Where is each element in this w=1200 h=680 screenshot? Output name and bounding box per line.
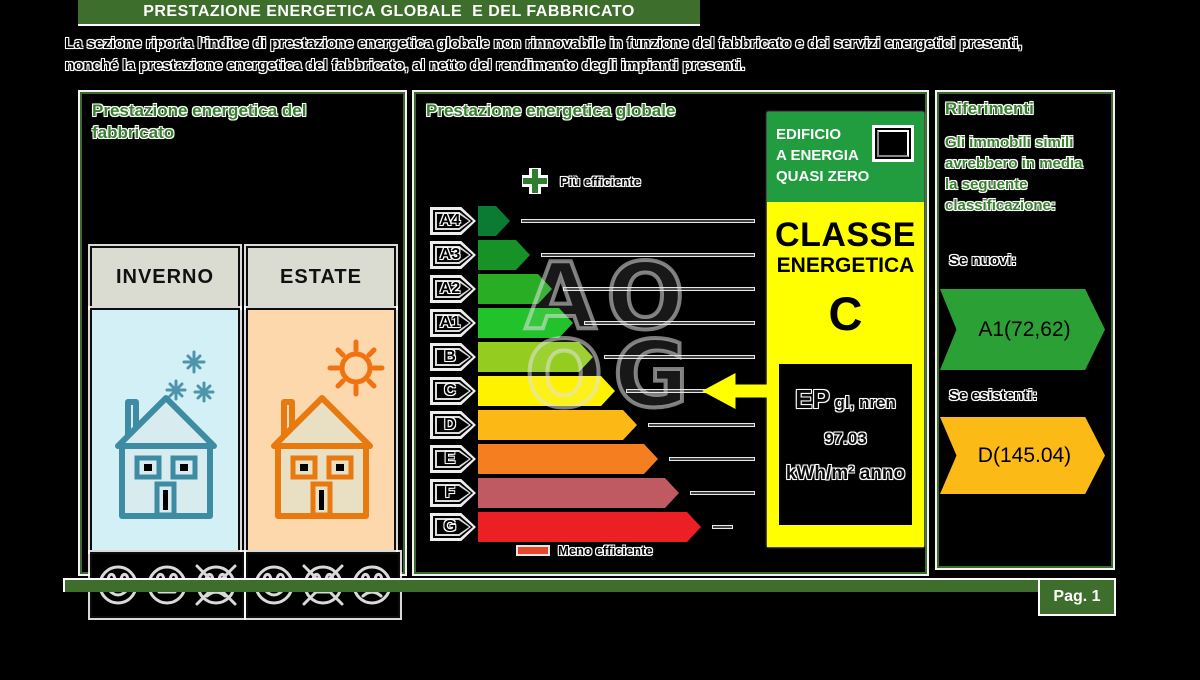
- ep-value-box: EP gl, nren 97.03 kWh/m² anno: [779, 364, 912, 525]
- class-tag: A3: [430, 241, 476, 269]
- nzeb-class-box: EDIFICIO A ENERGIA QUASI ZERO CLASSE ENE…: [767, 112, 924, 547]
- page-canvas: { "header": { "title": "PRESTAZIONE ENER…: [0, 0, 1200, 680]
- class-arrow: [478, 240, 530, 270]
- nzeb-checkbox: [872, 125, 914, 162]
- class-arrow: [478, 478, 679, 508]
- more-efficient-label: Più efficiente: [560, 174, 641, 189]
- more-efficient-indicator: Più efficiente: [520, 166, 641, 196]
- se-nuovi-label: Se nuovi:: [949, 252, 1017, 269]
- winter-house-icon: [92, 310, 238, 546]
- page-number: Pag. 1: [1053, 588, 1100, 606]
- class-tag: E: [430, 445, 476, 473]
- class-arrow: [478, 342, 593, 372]
- footer-bar: [63, 578, 1114, 592]
- sun-icon: [330, 342, 382, 394]
- page-number-box: Pag. 1: [1038, 578, 1116, 616]
- class-arrow: [478, 410, 637, 440]
- column-header-estate: ESTATE: [246, 246, 396, 308]
- fabbricato-panel: Prestazione energetica del fabbricato IN…: [78, 90, 407, 576]
- class-tag: A1: [430, 309, 476, 337]
- row-line: [542, 254, 754, 256]
- class-tag: A2: [430, 275, 476, 303]
- row-line: [691, 492, 754, 494]
- snowflake-icons: [167, 352, 213, 401]
- class-tag: C: [430, 377, 476, 405]
- nzeb-label: EDIFICIO A ENERGIA QUASI ZERO: [776, 124, 869, 187]
- row-line: [522, 220, 754, 222]
- class-arrow: [478, 376, 615, 406]
- class-tag: G: [430, 513, 476, 541]
- classe-title: CLASSE: [767, 216, 924, 255]
- winter-image-box: [90, 308, 240, 552]
- less-efficient-label: Meno efficiente: [558, 543, 653, 558]
- globale-panel: Prestazione energetica globale Più effic…: [412, 90, 929, 576]
- riferimenti-text: Gli immobili simili avrebbero in media l…: [945, 132, 1083, 216]
- class-arrow: [478, 444, 658, 474]
- riferimenti-panel: Riferimenti Gli immobili simili avrebber…: [935, 90, 1115, 570]
- row-line: [564, 288, 754, 290]
- class-arrow: [478, 274, 552, 304]
- se-esistenti-label: Se esistenti:: [949, 387, 1037, 404]
- class-tag: A4: [430, 207, 476, 235]
- header-title-box: PRESTAZIONE ENERGETICA GLOBALE E DEL FAB…: [78, 0, 700, 24]
- existing-class-value: D(145.04): [974, 444, 1071, 468]
- ep-label: EP gl, nren: [779, 384, 912, 415]
- row-line: [670, 458, 754, 460]
- page-description: La sezione riporta l'indice di prestazio…: [65, 33, 1145, 77]
- ep-value: 97.03: [779, 429, 912, 449]
- class-tag: D: [430, 411, 476, 439]
- row-line: [713, 526, 732, 528]
- inverno-label: INVERNO: [116, 266, 214, 289]
- class-tag: B: [430, 343, 476, 371]
- less-efficient-indicator: Meno efficiente: [518, 543, 653, 558]
- class-yellow-box: CLASSE ENERGETICA C EP gl, nren 97.03 kW…: [767, 202, 924, 547]
- summer-house-icon: [248, 310, 394, 546]
- class-arrow: [478, 512, 701, 542]
- column-header-inverno: INVERNO: [90, 246, 240, 308]
- new-class-arrow: A1(72,62): [940, 289, 1105, 370]
- estate-label: ESTATE: [280, 266, 362, 289]
- row-line: [649, 424, 754, 426]
- summer-image-box: [246, 308, 396, 552]
- fabbricato-panel-title: Prestazione energetica del fabbricato: [92, 100, 306, 144]
- classe-subtitle: ENERGETICA: [767, 254, 924, 278]
- riferimenti-title: Riferimenti: [945, 98, 1034, 120]
- page-title: PRESTAZIONE ENERGETICA GLOBALE E DEL FAB…: [143, 3, 635, 21]
- new-class-value: A1(72,62): [974, 318, 1070, 342]
- plus-icon: [520, 166, 550, 196]
- class-letter: C: [767, 286, 924, 341]
- globale-panel-title: Prestazione energetica globale: [426, 100, 675, 122]
- existing-class-arrow: D(145.04): [940, 417, 1105, 494]
- class-tag: F: [430, 479, 476, 507]
- row-line: [605, 356, 754, 358]
- row-line: [585, 322, 754, 324]
- nzeb-header: EDIFICIO A ENERGIA QUASI ZERO: [767, 112, 924, 202]
- class-arrow: [478, 206, 510, 236]
- minus-icon: [518, 547, 548, 554]
- class-arrow: [478, 308, 573, 338]
- ep-unit: kWh/m² anno: [779, 463, 912, 485]
